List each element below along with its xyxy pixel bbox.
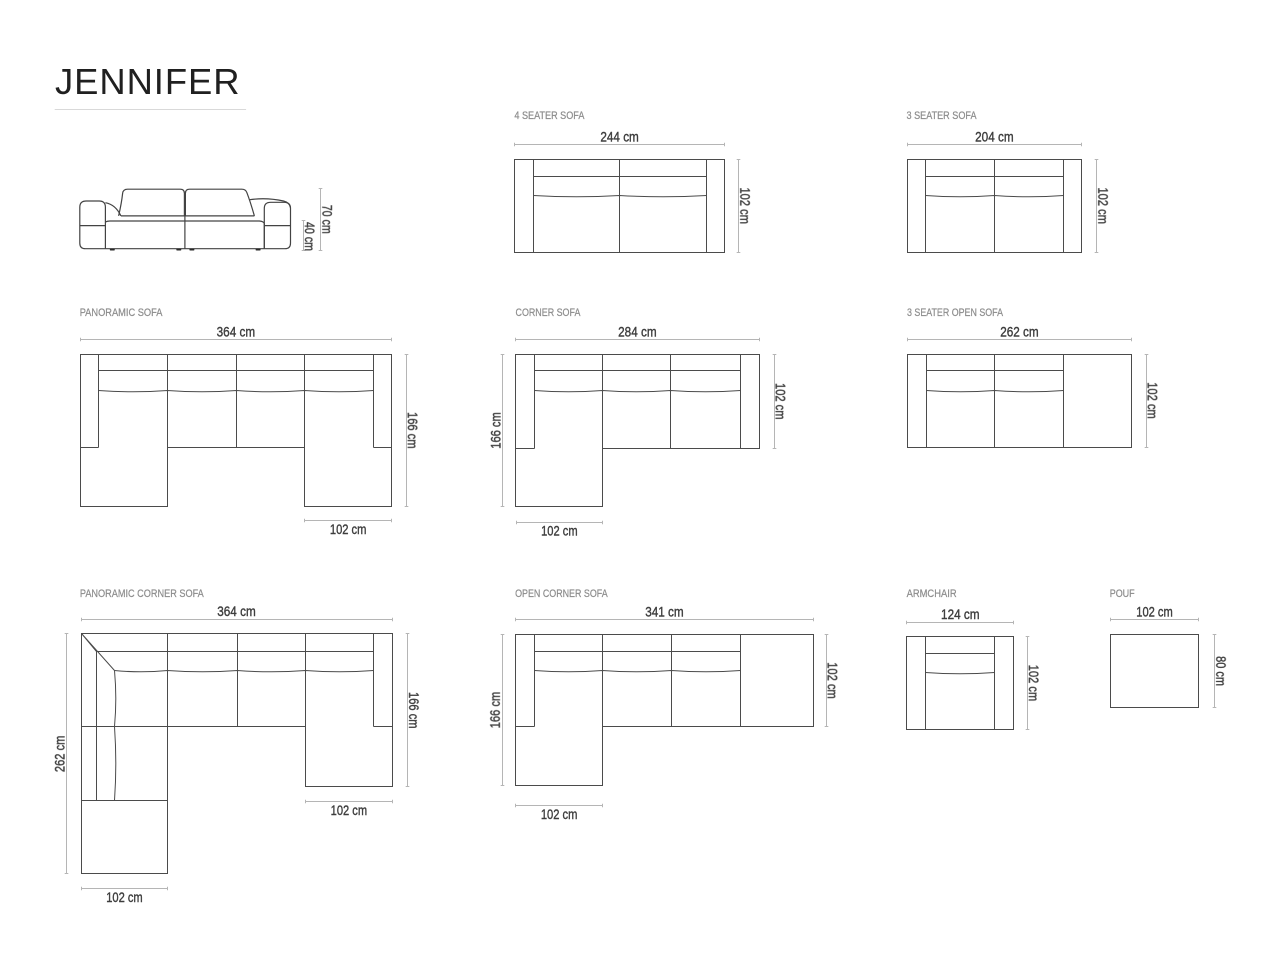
svg-text:244 cm: 244 cm	[600, 129, 639, 144]
svg-text:166 cm: 166 cm	[488, 412, 503, 449]
svg-text:80 cm: 80 cm	[1213, 656, 1228, 686]
svg-text:3 SEATER OPEN SOFA: 3 SEATER OPEN SOFA	[907, 307, 1004, 319]
svg-text:102 cm: 102 cm	[106, 890, 143, 905]
svg-text:102 cm: 102 cm	[330, 522, 367, 537]
svg-text:166 cm: 166 cm	[488, 692, 503, 729]
svg-text:102 cm: 102 cm	[825, 662, 840, 699]
svg-text:PANORAMIC CORNER SOFA: PANORAMIC CORNER SOFA	[80, 588, 205, 600]
svg-text:102 cm: 102 cm	[1136, 605, 1173, 620]
svg-text:102 cm: 102 cm	[773, 383, 788, 420]
svg-text:102 cm: 102 cm	[1026, 665, 1041, 702]
svg-text:102 cm: 102 cm	[1095, 187, 1110, 224]
svg-text:262 cm: 262 cm	[1000, 324, 1039, 339]
svg-text:364 cm: 364 cm	[217, 325, 256, 340]
svg-text:JENNIFER: JENNIFER	[55, 61, 240, 102]
svg-text:3 SEATER SOFA: 3 SEATER SOFA	[907, 110, 978, 122]
svg-text:284 cm: 284 cm	[618, 325, 657, 340]
svg-text:40 cm: 40 cm	[302, 222, 317, 251]
svg-text:102 cm: 102 cm	[331, 803, 368, 818]
svg-text:204 cm: 204 cm	[975, 129, 1014, 144]
svg-text:124 cm: 124 cm	[941, 607, 980, 622]
svg-text:ARMCHAIR: ARMCHAIR	[907, 588, 957, 600]
svg-text:364 cm: 364 cm	[217, 604, 256, 619]
svg-text:4 SEATER SOFA: 4 SEATER SOFA	[514, 110, 585, 122]
svg-text:102 cm: 102 cm	[1145, 382, 1160, 419]
svg-text:OPEN CORNER SOFA: OPEN CORNER SOFA	[515, 588, 608, 600]
svg-text:341 cm: 341 cm	[645, 604, 684, 619]
svg-text:POUF: POUF	[1110, 588, 1135, 600]
svg-text:102 cm: 102 cm	[541, 524, 578, 539]
svg-text:262 cm: 262 cm	[52, 736, 67, 773]
svg-text:CORNER SOFA: CORNER SOFA	[516, 307, 582, 319]
svg-text:166 cm: 166 cm	[406, 692, 421, 729]
svg-text:102 cm: 102 cm	[541, 807, 578, 822]
svg-text:166 cm: 166 cm	[405, 412, 420, 449]
svg-text:70 cm: 70 cm	[320, 205, 335, 234]
svg-text:PANORAMIC SOFA: PANORAMIC SOFA	[80, 307, 164, 319]
svg-text:102 cm: 102 cm	[737, 187, 752, 224]
